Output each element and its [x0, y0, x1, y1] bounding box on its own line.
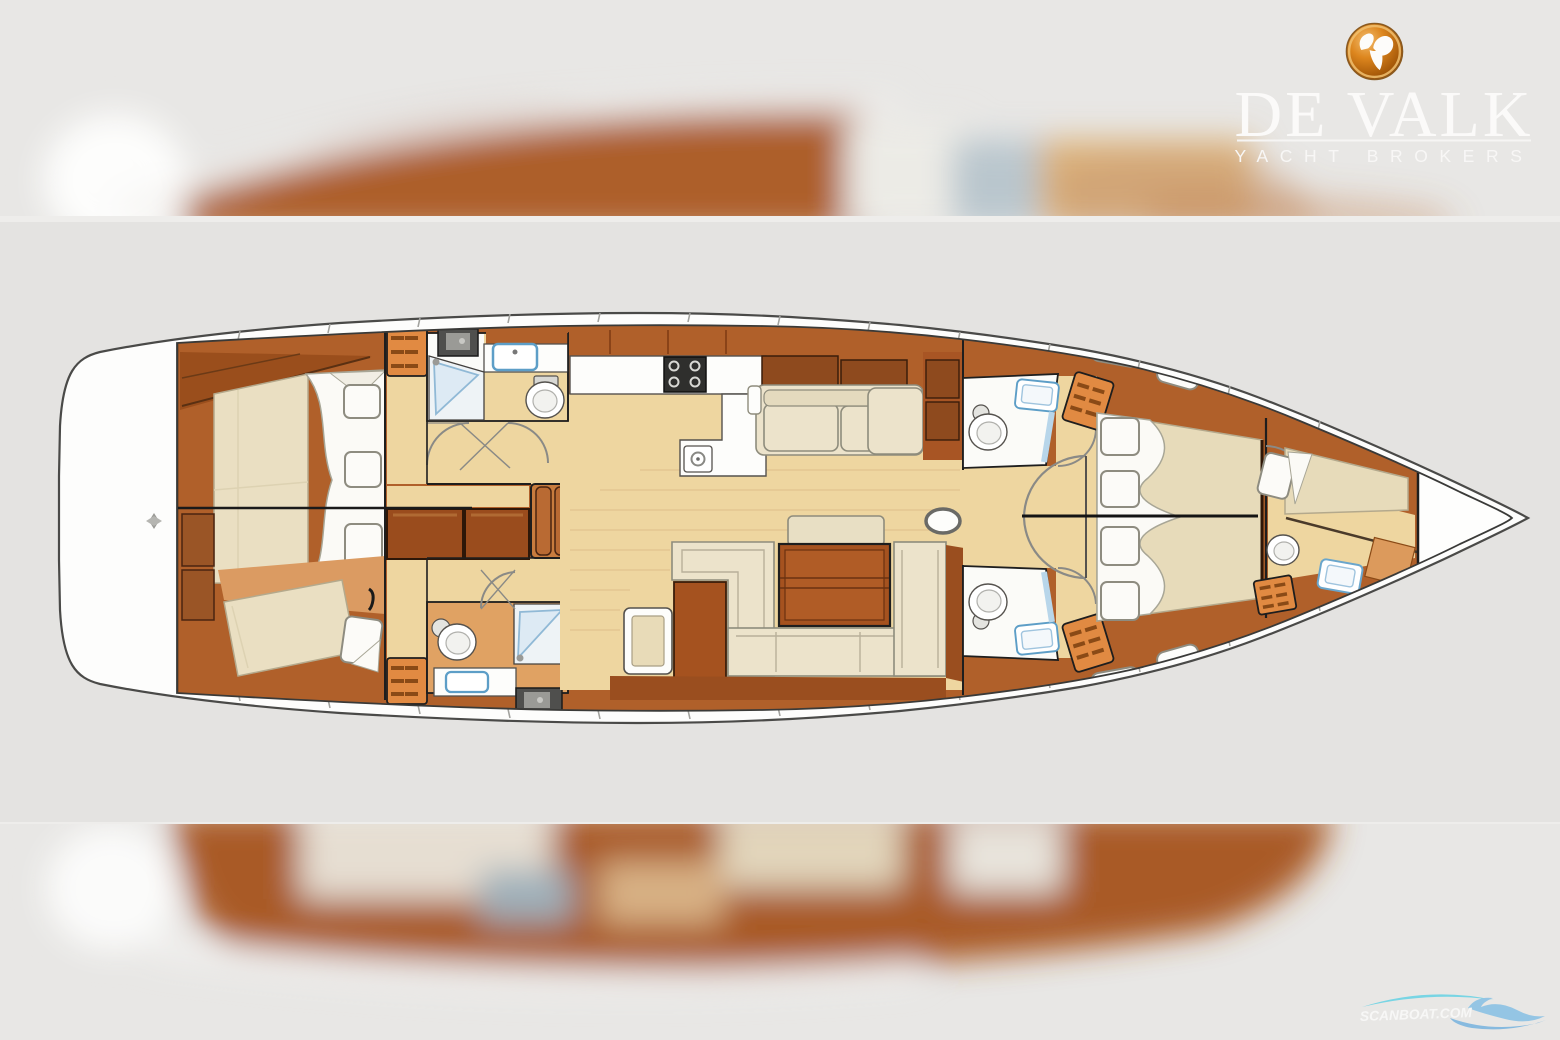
svg-text:YACHT BROKERS: YACHT BROKERS — [1235, 146, 1534, 166]
